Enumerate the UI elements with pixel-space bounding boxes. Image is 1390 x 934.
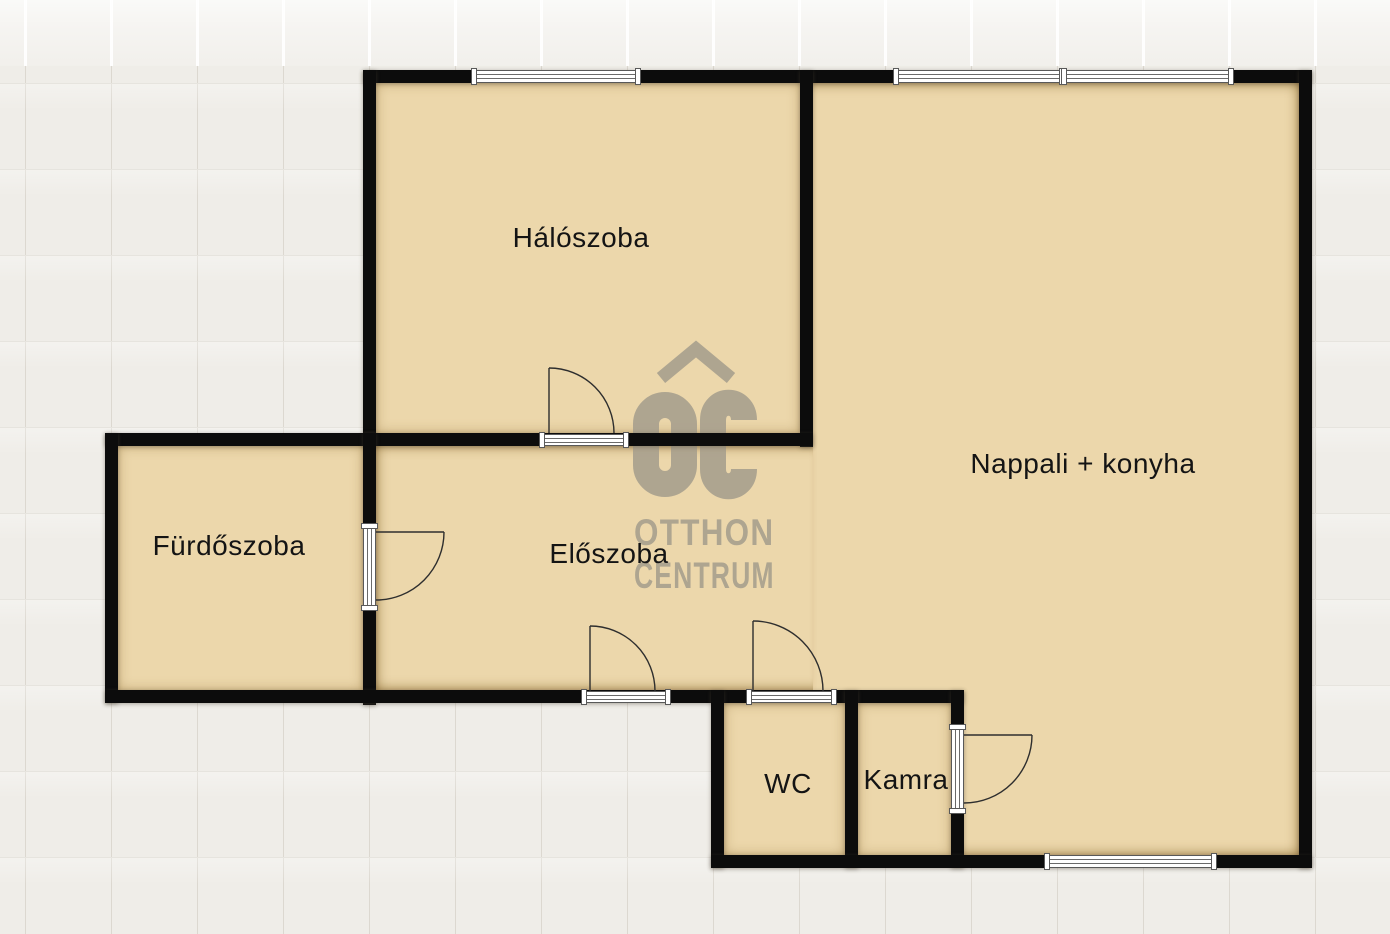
window-symbol-nappali-right [1065,70,1230,83]
wall-segment-mid-horizontal [105,433,813,446]
wall-segment-wc-left [711,690,724,868]
wall-segment-wc-kamra-divider [845,690,858,868]
window-symbol-nappali-bottom [1048,855,1213,868]
room-label-wc: WC [764,768,812,800]
room-label-haloszoba: Hálószoba [513,222,650,254]
wall-segment-right [1299,70,1312,868]
wall-segment-haloszoba-left [363,70,376,446]
wall-segment-furdo-left [105,433,118,703]
door-threshold-haloszoba [543,434,625,446]
wall-segment-halo-nappali-divider [800,70,813,447]
window-symbol-nappali-left [897,70,1061,83]
room-label-kamra: Kamra [864,764,949,796]
room-floor-furdoszoba [118,446,363,690]
door-jamb-furdoszoba [363,527,376,607]
room-label-nappali-konyha: Nappali + konyha [970,448,1195,480]
door-threshold-wc [750,691,833,703]
door-jamb-kamra [951,728,964,810]
grid-top-band [0,0,1390,66]
room-floor-haloszoba [376,83,800,433]
room-label-furdoszoba: Fürdőszoba [153,530,306,562]
wall-segment-bottom-right [711,855,1312,868]
floor-plan-canvas: OTTHON CENTRUM [0,0,1390,934]
door-threshold-entrance [585,691,667,703]
room-label-eloszoba: Előszoba [549,538,668,570]
window-symbol-haloszoba [475,70,637,83]
